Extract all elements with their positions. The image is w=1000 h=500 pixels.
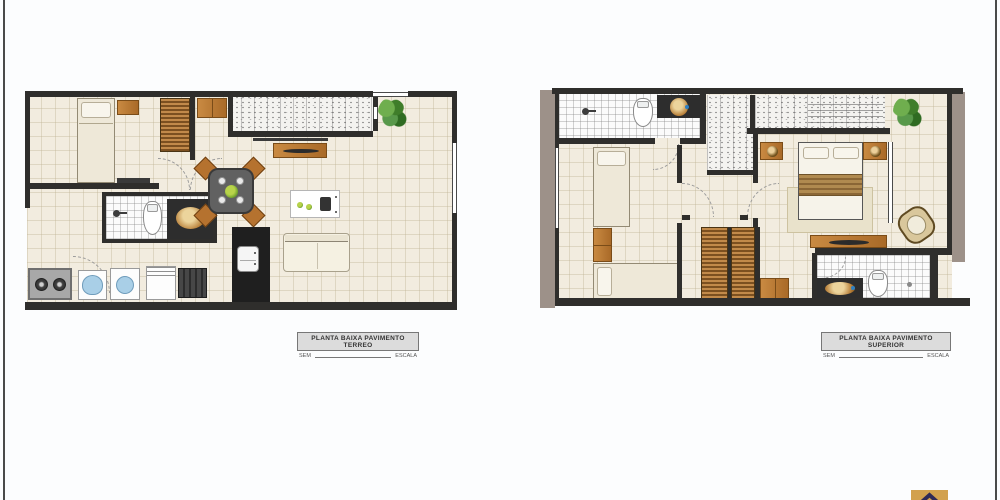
wardrobe (160, 98, 190, 152)
builder-logo (911, 490, 948, 500)
outer-wall-left (555, 88, 559, 148)
blueprint-canvas: PLANTA BAIXA PAVIMENTO TERREO SEM ESCALA… (0, 0, 1000, 500)
fridge-icon (237, 246, 259, 272)
stair-treads (808, 99, 883, 126)
wall (559, 138, 655, 144)
chair-cushion (903, 211, 930, 238)
fridge-niche (232, 227, 270, 302)
window (555, 148, 559, 228)
double-bed (798, 142, 863, 220)
coffee-maker-icon (320, 197, 331, 211)
cooktop (28, 268, 72, 300)
plan-title: PLANTA BAIXA PAVIMENTO TERREO (297, 332, 419, 351)
sofa-cushion-split (317, 243, 318, 269)
floor-plan-superior (540, 88, 975, 310)
toilet-icon (143, 201, 162, 235)
scale-line (839, 357, 923, 358)
wall (947, 88, 952, 255)
plate (218, 177, 226, 185)
wall (707, 170, 755, 175)
cabinet-divider (212, 99, 213, 117)
tv-icon (829, 240, 869, 245)
wall (700, 93, 706, 138)
plan-label-terreo: PLANTA BAIXA PAVIMENTO TERREO SEM ESCALA (297, 332, 419, 359)
toilet-icon (868, 270, 888, 297)
wall (677, 145, 682, 183)
plate (236, 177, 244, 185)
sink-counter (146, 266, 176, 300)
lamp-icon (767, 146, 778, 157)
drain-icon (907, 282, 912, 287)
washing-machine (110, 268, 140, 300)
wall (753, 134, 758, 183)
sofa-back (285, 235, 348, 242)
plan-label-superior: PLANTA BAIXA PAVIMENTO SUPERIOR SEM ESCA… (821, 332, 951, 359)
washer-drum-icon (116, 276, 134, 294)
lamp-icon (870, 146, 881, 157)
faucet-icon (851, 286, 855, 290)
window (888, 142, 893, 223)
nightstand (863, 142, 887, 160)
wall (740, 215, 748, 220)
nightstand (593, 228, 612, 262)
shower-head-icon (582, 108, 589, 115)
fridge-handle (254, 252, 256, 254)
single-bed (593, 263, 680, 300)
scale-row: SEM ESCALA (297, 353, 419, 359)
scale-right-label: ESCALA (927, 353, 949, 359)
wall (812, 253, 817, 298)
tub-basin (82, 275, 103, 295)
cup (306, 204, 312, 210)
vanity-counter (817, 278, 863, 298)
blanket (799, 174, 862, 196)
window (373, 92, 408, 97)
vanity-counter (657, 95, 700, 118)
tv-panel (273, 143, 327, 158)
laundry-tub (78, 270, 107, 300)
outer-wall-right (452, 213, 457, 304)
wall (190, 97, 195, 160)
pillow (597, 151, 626, 166)
bedroom-tv-icon (117, 178, 150, 183)
wall (680, 138, 706, 144)
shelf (253, 138, 328, 141)
cup (297, 202, 303, 208)
centerpiece (225, 185, 238, 198)
dresser (810, 235, 887, 248)
nightstand (760, 142, 783, 160)
patio-texture (228, 95, 373, 131)
roof-chevron-icon (911, 490, 948, 500)
fridge-door-line (240, 260, 256, 261)
knob (335, 196, 337, 198)
pillow (833, 147, 859, 159)
outer-wall-right (452, 91, 457, 143)
stove (178, 268, 207, 298)
wall (677, 223, 682, 300)
outer-wall-left (555, 228, 559, 300)
wall (373, 119, 378, 131)
dining-table (208, 168, 254, 214)
outer-wall-left (25, 91, 30, 208)
wall (747, 128, 890, 134)
tv-icon (283, 149, 319, 153)
plate (218, 196, 226, 204)
plate (236, 196, 244, 204)
wall (682, 215, 690, 220)
scale-line (315, 357, 391, 358)
outer-wall-bottom (25, 302, 457, 310)
wall (753, 218, 758, 227)
window (452, 143, 457, 213)
drawer-line (594, 245, 611, 246)
wall (25, 183, 159, 189)
sofa (283, 233, 350, 272)
toilet-tank (147, 204, 159, 212)
scale-left-label: SEM (823, 353, 835, 359)
single-bed (593, 147, 630, 227)
toilet-tank (872, 273, 885, 280)
page-edge-line-right (995, 0, 997, 500)
faucet-icon (685, 105, 689, 109)
outer-wall-bottom (555, 298, 970, 306)
plant-icon (378, 98, 407, 132)
blanket-line (79, 123, 113, 124)
floor-plan-terreo (25, 88, 457, 312)
single-bed (77, 98, 115, 183)
pillow (81, 102, 111, 118)
pillow (803, 147, 829, 159)
burner-icon (53, 278, 66, 291)
scale-right-label: ESCALA (395, 353, 417, 359)
burner-icon (35, 278, 48, 291)
knob (335, 211, 337, 213)
scale-row: SEM ESCALA (821, 353, 951, 359)
nightstand (117, 100, 139, 115)
outer-wall-top (552, 88, 963, 94)
outer-wall-top (408, 91, 457, 97)
plant-icon (893, 97, 922, 132)
fridge-handle (254, 263, 256, 265)
plan-title: PLANTA BAIXA PAVIMENTO SUPERIOR (821, 332, 951, 351)
wardrobe (701, 227, 728, 302)
toilet-tank (637, 101, 650, 108)
outer-masonry-wall-right (952, 92, 965, 262)
wall (930, 253, 938, 298)
scale-left-label: SEM (299, 353, 311, 359)
kitchen-island (290, 190, 340, 218)
toilet-icon (633, 98, 653, 127)
outer-wall-top (25, 91, 373, 97)
cabinet (197, 98, 227, 118)
outer-masonry-wall-left (540, 90, 555, 308)
pillow (597, 267, 612, 296)
wardrobe (731, 227, 755, 302)
wall (228, 131, 373, 137)
page-edge-line-left (3, 0, 5, 500)
shower-head-icon (113, 210, 120, 217)
